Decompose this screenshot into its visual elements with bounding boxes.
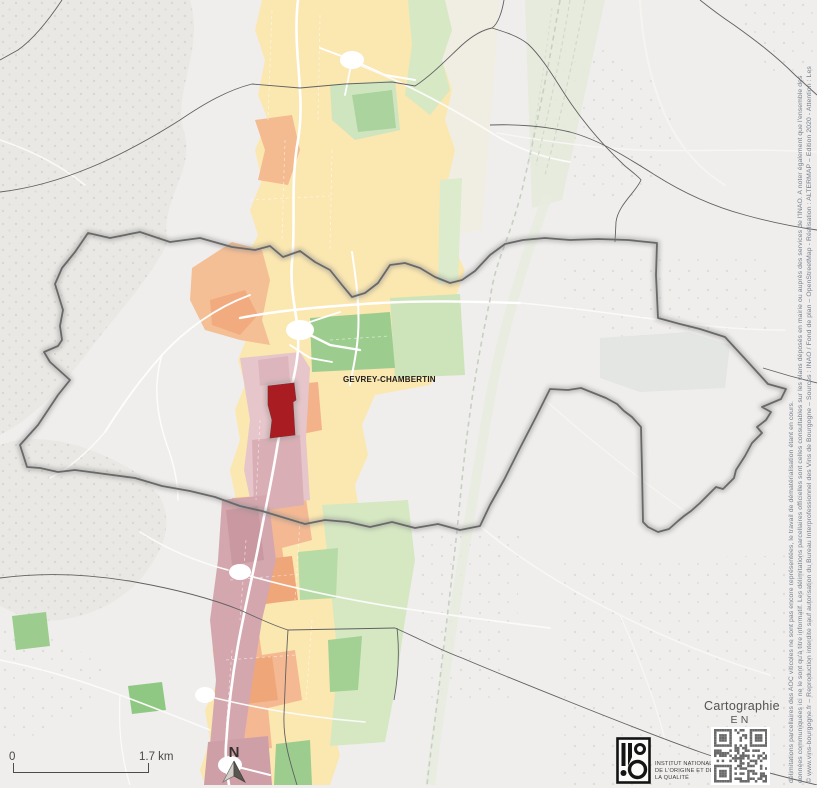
copyright-line-3: délimitations parcellaires des AOC vitic… <box>788 401 795 783</box>
red-parcel <box>268 383 296 438</box>
copyright-line-2: données communiquées ici ne le sont qu'à… <box>797 76 804 783</box>
scale-end-label: 1.7 km <box>139 751 174 763</box>
scale-bar <box>13 763 149 773</box>
inao-caption-line2: DE L'ORIGINE ET DE <box>655 768 714 775</box>
map-canvas: GEVREY-CHAMBERTIN <box>0 0 817 785</box>
north-arrow: N <box>219 746 249 788</box>
inao-logo-block: INSTITUT NATIONAL DE L'ORIGINE ET DE LA … <box>616 737 714 784</box>
inao-caption: INSTITUT NATIONAL DE L'ORIGINE ET DE LA … <box>655 761 714 782</box>
copyright-line-1: © www.vins-bourgogne.fr – Reproduction i… <box>806 66 813 783</box>
cartography-caption-line1: Cartographie <box>704 699 778 713</box>
north-label: N <box>219 746 249 760</box>
inao-caption-line1: INSTITUT NATIONAL <box>655 761 714 768</box>
inao-logo-icon <box>616 737 651 784</box>
scale-start-label: 0 <box>9 751 15 763</box>
qr-code <box>711 727 770 785</box>
region-label: GEVREY-CHAMBERTIN <box>343 375 436 384</box>
compass-icon <box>220 760 248 783</box>
inao-caption-line3: LA QUALITÉ <box>655 775 714 782</box>
urban-patch <box>600 332 730 392</box>
